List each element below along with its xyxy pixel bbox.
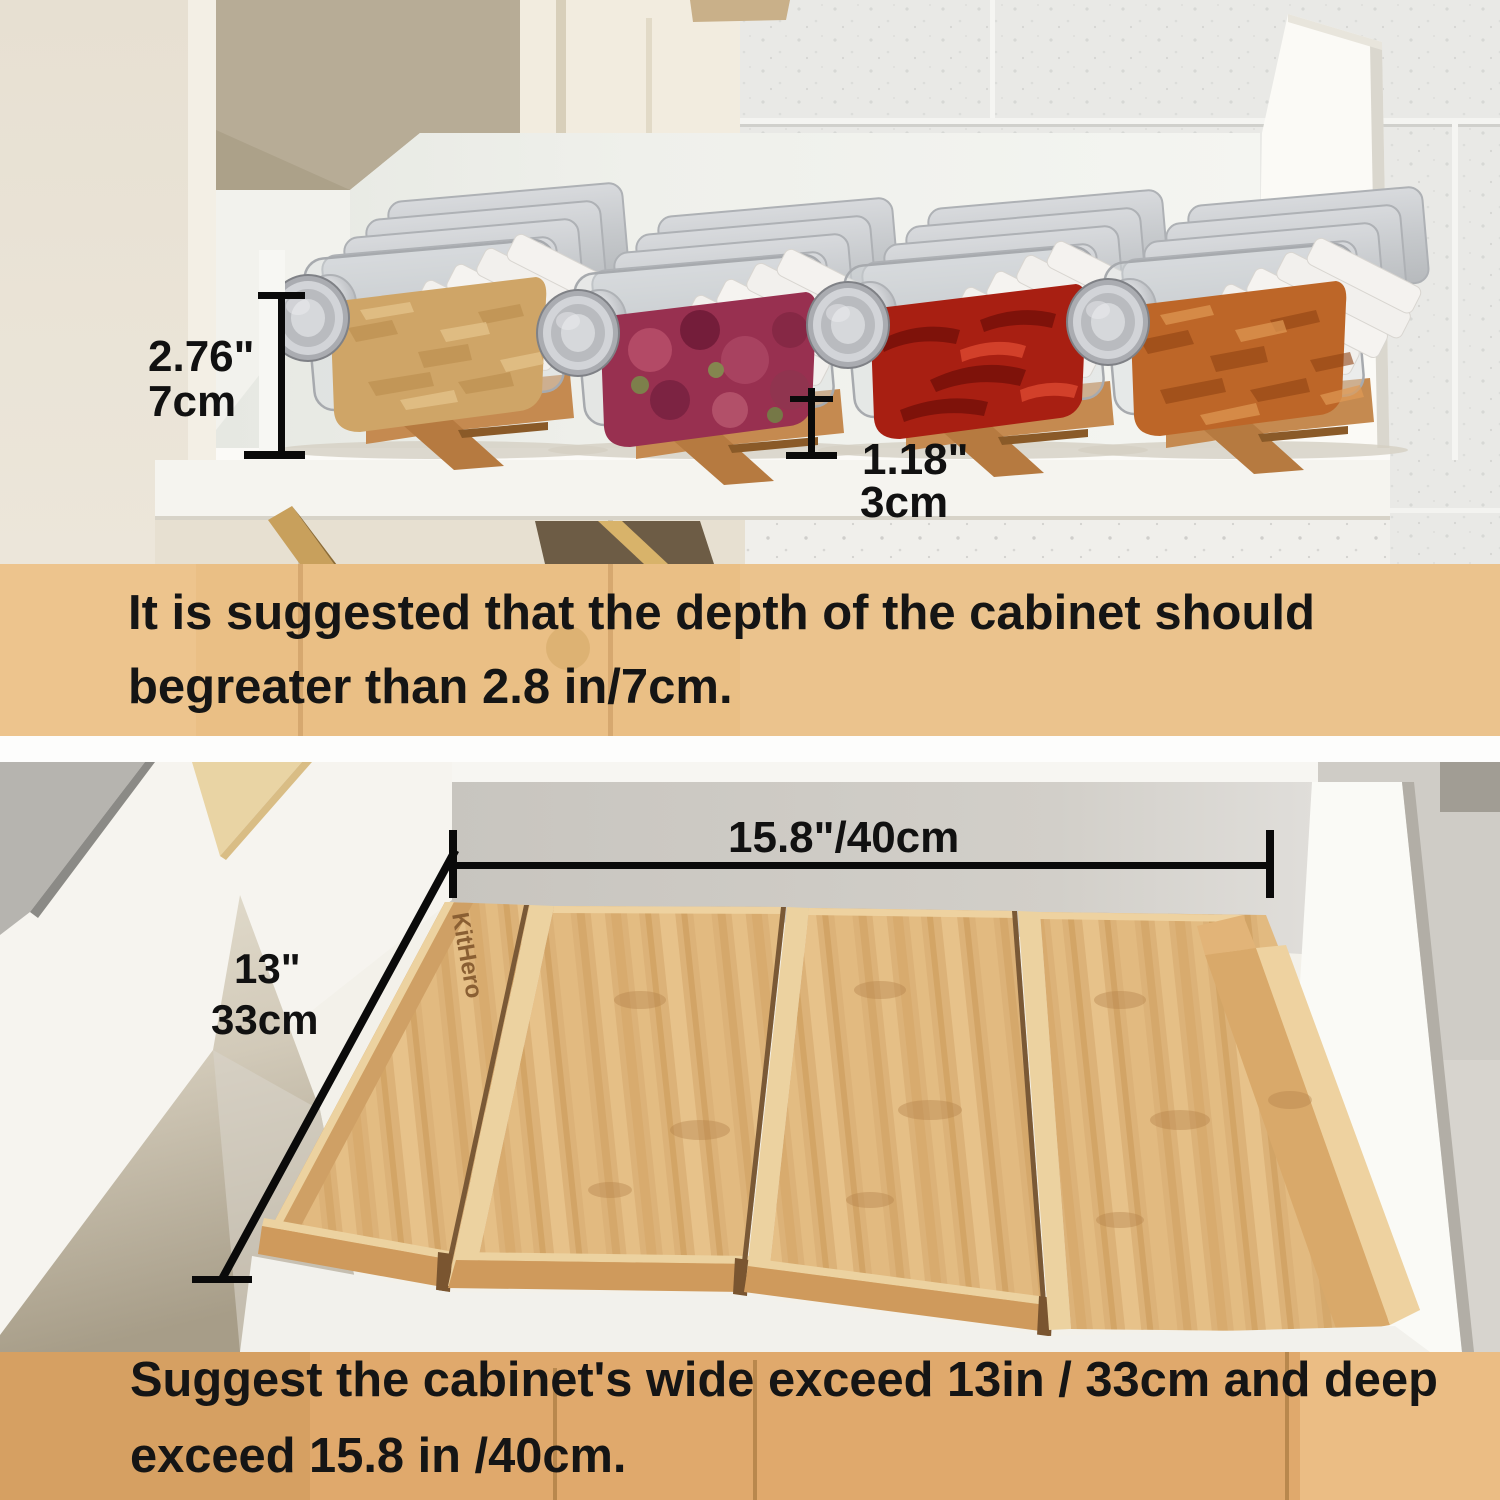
svg-text:15.8"/40cm: 15.8"/40cm	[728, 813, 959, 862]
svg-text:33cm: 33cm	[211, 996, 318, 1043]
svg-text:It is suggested that the depth: It is suggested that the depth of the ca…	[128, 586, 1315, 640]
svg-text:2.76": 2.76"	[148, 332, 255, 381]
svg-text:13": 13"	[234, 945, 301, 992]
svg-text:7cm: 7cm	[148, 377, 236, 426]
svg-text:Suggest the cabinet's wide exc: Suggest the cabinet's wide exceed 13in /…	[130, 1353, 1438, 1407]
svg-text:begreater than 2.8 in/7cm.: begreater than 2.8 in/7cm.	[128, 660, 733, 714]
svg-text:1.18": 1.18"	[862, 435, 969, 484]
svg-text:3cm: 3cm	[860, 478, 948, 527]
svg-text:exceed 15.8 in /40cm.: exceed 15.8 in /40cm.	[130, 1429, 626, 1483]
